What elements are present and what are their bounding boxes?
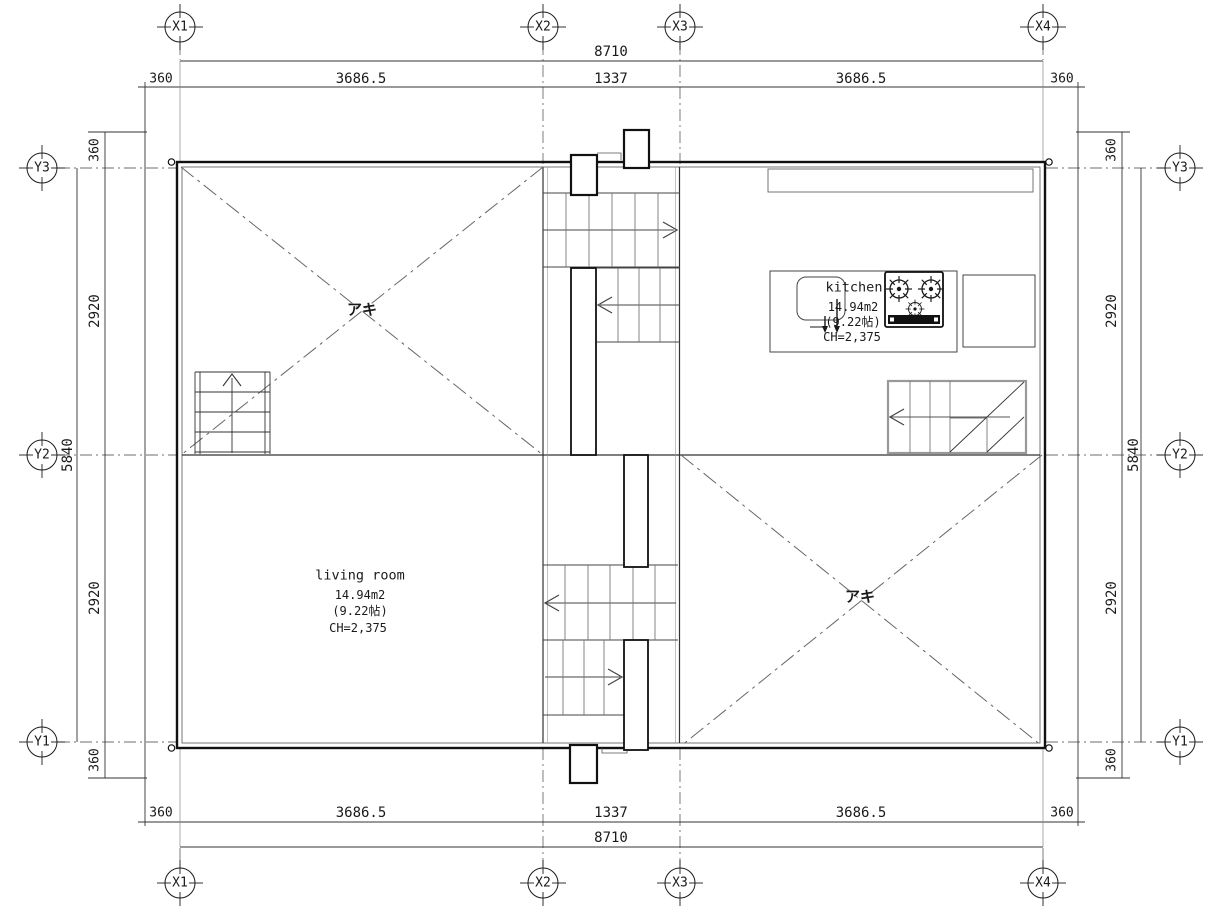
void-diagonals xyxy=(181,167,1042,746)
ladder xyxy=(195,372,270,454)
axis-marker-y2-left: Y2 xyxy=(34,449,50,462)
dim-h-seg4-bottom: 3686.5 xyxy=(836,806,887,820)
dim-h-seg1-top: 360 xyxy=(149,73,172,86)
floor-plan-canvas: X1 X2 X3 X4 X1 X2 X3 X4 Y3 Y2 Y1 Y3 Y2 Y… xyxy=(0,0,1216,922)
kitchen-area-m2: 14.94m2 xyxy=(828,301,879,313)
dim-h-total-bottom: 8710 xyxy=(594,831,628,845)
living-room-name: living room xyxy=(315,569,404,583)
grill xyxy=(888,315,940,324)
dim-v-seg4-left: 360 xyxy=(89,748,102,771)
dim-v-seg4-right: 360 xyxy=(1106,748,1119,771)
axis-marker-x4-top: X4 xyxy=(1035,21,1051,34)
dim-h-seg5-top: 360 xyxy=(1050,73,1073,86)
dim-v-seg3-left: 2920 xyxy=(88,581,102,615)
dim-v-total-left: 5840 xyxy=(61,438,75,472)
floor-plan-linework xyxy=(0,0,1216,922)
axis-marker-y3-right: Y3 xyxy=(1172,162,1188,175)
axis-marker-x2-bottom: X2 xyxy=(535,877,551,890)
axis-marker-x3-bottom: X3 xyxy=(672,877,688,890)
dim-h-seg1-bottom: 360 xyxy=(149,807,172,820)
stair-upper xyxy=(543,193,680,455)
dim-h-seg2-top: 3686.5 xyxy=(336,72,387,86)
kitchen-fixtures xyxy=(768,169,1035,352)
void-label-upper-left: アキ xyxy=(347,303,377,318)
axis-marker-y1-left: Y1 xyxy=(34,736,50,749)
axis-marker-y2-right: Y2 xyxy=(1172,449,1188,462)
dim-h-seg3-top: 1337 xyxy=(594,72,628,86)
dim-h-total-top: 8710 xyxy=(594,45,628,59)
dim-v-total-right: 5840 xyxy=(1127,438,1141,472)
axis-marker-y3-left: Y3 xyxy=(34,162,50,175)
dim-h-seg5-bottom: 360 xyxy=(1050,807,1073,820)
living-room-ceiling-height: CH=2,375 xyxy=(329,622,387,634)
dim-v-seg1-right: 360 xyxy=(1106,138,1119,161)
living-room-area-m2: 14.94m2 xyxy=(335,589,386,601)
kitchen-name: kitchen xyxy=(826,281,883,295)
axis-marker-x3-top: X3 xyxy=(672,21,688,34)
stair-lower xyxy=(543,455,678,750)
dim-v-seg3-right: 2920 xyxy=(1105,581,1119,615)
axis-marker-x2-top: X2 xyxy=(535,21,551,34)
dim-v-seg1-left: 360 xyxy=(89,138,102,161)
dim-v-seg2-right: 2920 xyxy=(1105,294,1119,328)
kitchen-area-tatami: (9.22帖) xyxy=(825,316,880,328)
axis-marker-x1-bottom: X1 xyxy=(172,877,188,890)
kitchen-ceiling-height: CH=2,375 xyxy=(823,331,881,343)
refrigerator xyxy=(963,275,1035,347)
stair-winder xyxy=(888,381,1026,453)
axis-marker-x1-top: X1 xyxy=(172,21,188,34)
wall-counter xyxy=(768,169,1033,192)
dim-h-seg2-bottom: 3686.5 xyxy=(336,806,387,820)
void-label-lower-right: アキ xyxy=(845,590,875,605)
dim-h-seg4-top: 3686.5 xyxy=(836,72,887,86)
axis-marker-x4-bottom: X4 xyxy=(1035,877,1051,890)
dim-v-seg2-left: 2920 xyxy=(88,294,102,328)
dim-h-seg3-bottom: 1337 xyxy=(594,806,628,820)
axis-marker-y1-right: Y1 xyxy=(1172,736,1188,749)
living-room-area-tatami: (9.22帖) xyxy=(332,605,387,617)
